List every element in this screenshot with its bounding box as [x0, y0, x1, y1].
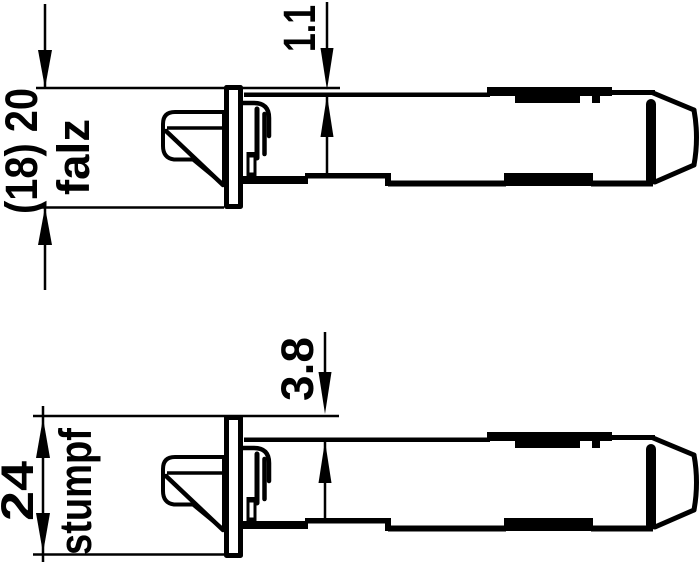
dim-label-height-stumpf: 24: [0, 461, 43, 521]
door-type-label-falz: falz: [48, 119, 99, 195]
drawing-canvas: (18) 20 falz 1.1 24 stumpf 3.8: [0, 0, 700, 562]
view-stumpf: 24 stumpf 3.8: [0, 332, 697, 562]
dim-label-height-falz: (18) 20: [0, 88, 47, 214]
view-falz: (18) 20 falz 1.1: [0, 2, 697, 290]
dim-arrow-down: [321, 48, 334, 90]
handle-drawing-stumpf: [163, 432, 697, 532]
dim-label-offset-stumpf: 3.8: [272, 337, 323, 401]
dim-label-offset-falz: 1.1: [274, 5, 325, 52]
dim-arrow-up: [36, 418, 50, 458]
dim-arrow-down: [38, 50, 52, 88]
rosette-plate-falz: [227, 88, 241, 207]
door-type-label-stumpf: stumpf: [50, 427, 101, 555]
handle-drawing-falz: [163, 87, 697, 187]
technical-drawing-svg: (18) 20 falz 1.1 24 stumpf 3.8: [0, 0, 700, 562]
rosette-plate-stumpf: [227, 418, 241, 556]
